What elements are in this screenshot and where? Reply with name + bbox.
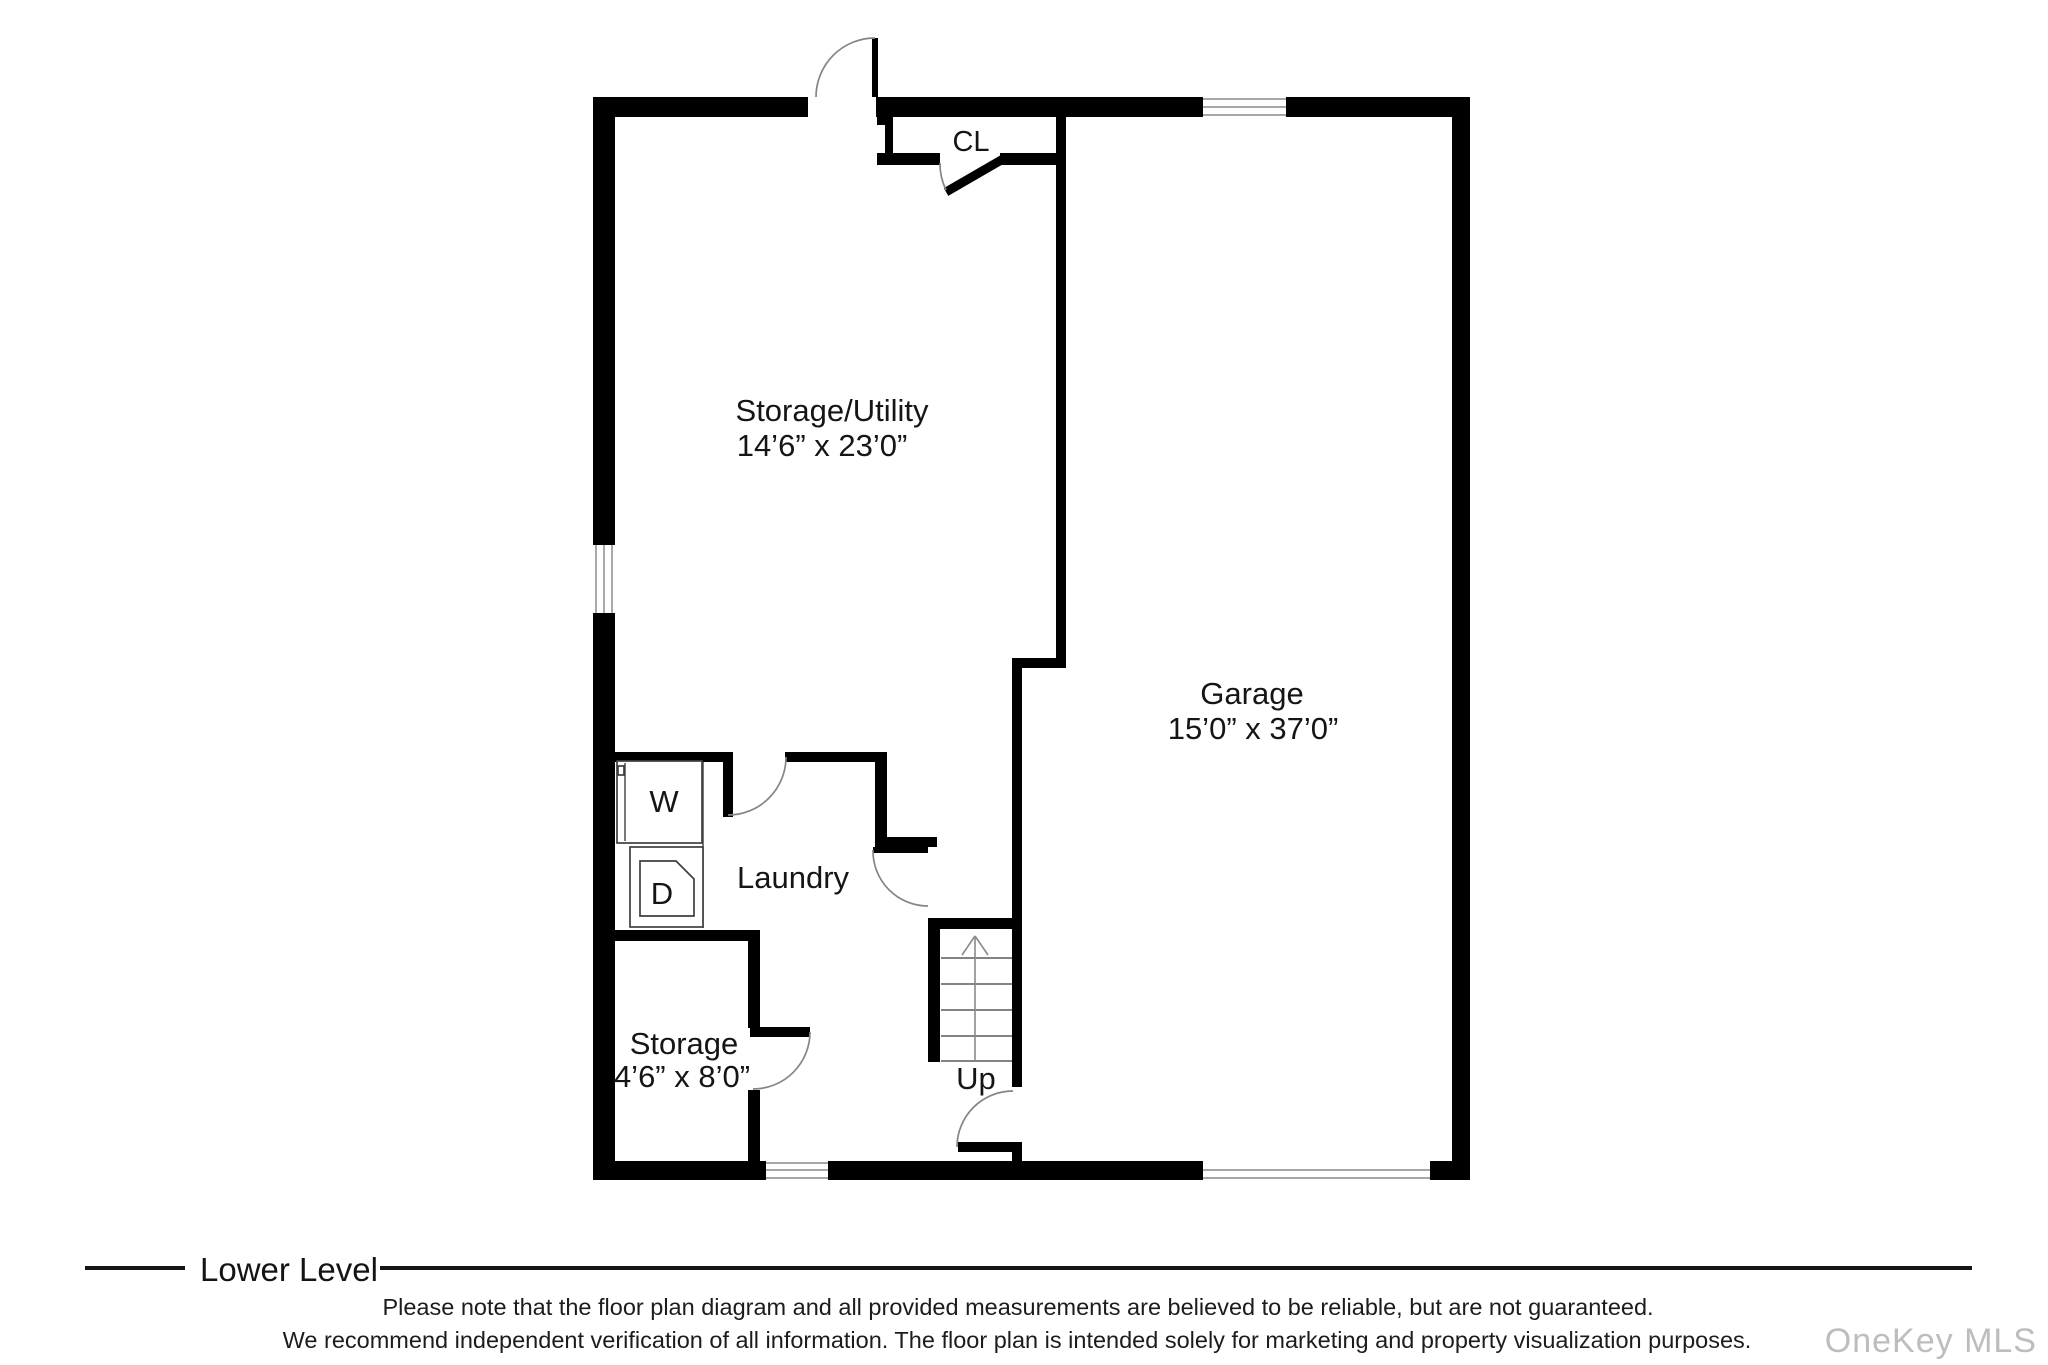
closet-bottom-wall-right bbox=[1000, 153, 1066, 165]
left-wall-upper bbox=[593, 97, 615, 545]
washer-label: W bbox=[649, 784, 679, 819]
garage-door-opening bbox=[1203, 1170, 1430, 1178]
stairs-up-label: Up bbox=[956, 1061, 996, 1096]
storage-right-wall-lower bbox=[748, 1090, 760, 1161]
room-labels: Storage/Utility 14’6” x 23’0” Garage 15’… bbox=[614, 126, 1338, 1094]
entry-door-leaf bbox=[872, 38, 878, 97]
laundry-door-arc bbox=[728, 757, 786, 815]
closet-door-leaf bbox=[946, 159, 1003, 192]
left-wall-window bbox=[596, 545, 612, 613]
entry-door-arc bbox=[816, 38, 875, 97]
laundry-right-wall bbox=[875, 752, 887, 847]
bottom-wall-right bbox=[1430, 1161, 1470, 1180]
stair-bottom-door-arc bbox=[957, 1091, 1013, 1147]
stairwell-top-wall bbox=[928, 918, 1013, 929]
storage-utility-dims: 14’6” x 23’0” bbox=[737, 428, 908, 463]
stairs: Up bbox=[941, 936, 1012, 1096]
top-wall-right bbox=[1286, 97, 1470, 117]
closet-label: CL bbox=[952, 126, 989, 158]
dryer-label: D bbox=[651, 876, 673, 911]
stair-door-post bbox=[1012, 1142, 1022, 1161]
bottom-wall-mid bbox=[828, 1161, 1203, 1180]
floor-plan-page: W D Up Storage/Utility 14’6” x 23’0” Gar… bbox=[0, 0, 2048, 1365]
laundry-door-leaf bbox=[723, 752, 733, 817]
laundry-appliances: W D bbox=[617, 761, 703, 928]
closet-bottom-wall-left bbox=[877, 153, 940, 165]
doors bbox=[723, 38, 1013, 1152]
storage-name: Storage bbox=[630, 1026, 739, 1061]
bottom-wall-left bbox=[593, 1161, 766, 1180]
divider-wall-upper bbox=[1056, 117, 1066, 668]
divider-wall-lower bbox=[1012, 668, 1022, 1087]
stair-top-door-leaf bbox=[873, 847, 928, 853]
storage-door-leaf bbox=[750, 1027, 810, 1037]
stairwell-left-wall bbox=[928, 918, 940, 1062]
garage-top-window bbox=[1203, 99, 1286, 115]
footer: Lower Level Please note that the floor p… bbox=[85, 1251, 2037, 1360]
stair-top-door-arc bbox=[873, 850, 928, 906]
floor-plan-svg: W D Up Storage/Utility 14’6” x 23’0” Gar… bbox=[0, 0, 2048, 1365]
garage-name: Garage bbox=[1200, 676, 1303, 711]
top-wall-mid bbox=[876, 97, 1203, 117]
divider-wall-jog bbox=[1012, 658, 1066, 668]
bottom-wall-window bbox=[766, 1163, 828, 1178]
disclaimer-line-1: Please note that the floor plan diagram … bbox=[382, 1294, 1653, 1320]
right-wall bbox=[1452, 97, 1470, 1180]
storage-door-arc bbox=[753, 1032, 810, 1089]
left-wall-lower bbox=[593, 613, 615, 1180]
laundry-top-wall-right bbox=[785, 752, 885, 762]
garage-dims: 15’0” x 37’0” bbox=[1168, 711, 1339, 746]
top-wall-left bbox=[593, 97, 808, 117]
stair-direction-arrowhead bbox=[962, 936, 975, 955]
storage-dims: 4’6” x 8’0” bbox=[614, 1059, 750, 1094]
closet-door-arc bbox=[940, 163, 946, 190]
stair-direction-arrowhead bbox=[975, 936, 988, 955]
laundry-name: Laundry bbox=[737, 860, 850, 895]
storage-right-wall-upper bbox=[748, 930, 760, 1028]
washer-notch bbox=[618, 766, 624, 775]
stair-bottom-door-leaf bbox=[958, 1142, 1013, 1152]
watermark-onekey-mls: OneKey MLS bbox=[1825, 1322, 2037, 1360]
storage-utility-name: Storage/Utility bbox=[736, 393, 929, 428]
level-title: Lower Level bbox=[200, 1251, 378, 1288]
disclaimer-line-2: We recommend independent verification of… bbox=[283, 1327, 1752, 1353]
interior-walls bbox=[615, 115, 1066, 1161]
landing-top-wall bbox=[875, 837, 937, 847]
exterior-walls bbox=[593, 97, 1470, 1180]
storage-top-wall bbox=[615, 930, 760, 941]
